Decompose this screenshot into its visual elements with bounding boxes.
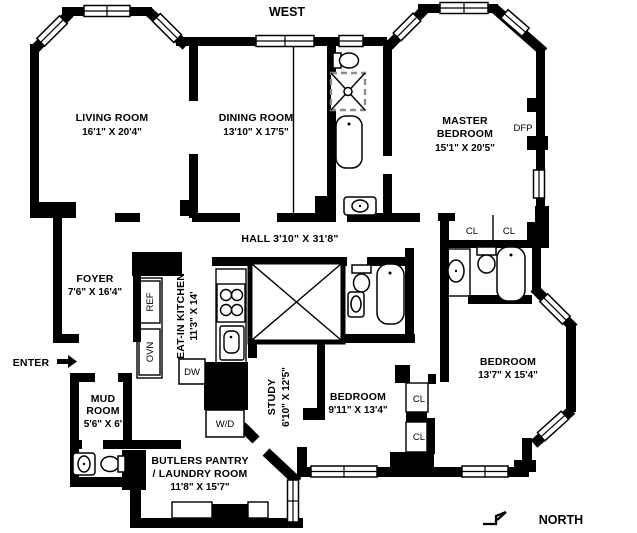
foyer-dims: 7'6" X 16'4" [68,287,123,298]
closet-label-master-1: CL [466,226,478,237]
window [84,6,130,17]
sink [344,197,376,215]
middle-bath-fixtures [348,264,404,324]
bay-window [393,13,421,41]
bay-window [540,294,570,324]
bathtub [497,247,525,301]
oven-label: OVN [145,342,156,363]
living-room-name: LIVING ROOM [76,112,149,124]
dfp-label: DFP [514,123,533,134]
window [311,466,377,477]
toilet [333,53,359,68]
washer-dryer-label: W/D [216,419,235,430]
butlers-pantry-dims: 11'8" X 15'7" [170,482,230,493]
kitchen-name: EAT-IN KITCHEN [175,273,187,359]
enter-arrow-icon [57,355,77,368]
master-bath-fixtures [331,53,376,215]
window [288,480,299,522]
north-arrow-icon [483,512,506,524]
toilet [352,265,371,292]
foyer-name: FOYER [76,273,113,285]
living-room-dims: 16'1" X 20'4" [82,127,142,138]
master-bedroom-dims: 15'1" X 20'5" [435,143,495,154]
mud-room-dims: 5'6" X 6' [84,419,122,430]
sink [348,292,364,317]
bedroom-mid-dims: 9'11" X 13'4" [328,405,388,416]
master-bedroom-name-1: MASTER [442,115,488,127]
sink [73,453,95,475]
closet-label-mid-2: CL [413,432,425,443]
bay-window [37,16,67,46]
toilet [477,247,496,273]
bedroom-right-dims: 13'7" X 15'4" [478,370,538,381]
bay-window [153,14,182,43]
dishwasher-label: DW [184,367,200,378]
sink [448,260,464,282]
study-name: STUDY [266,379,278,416]
dining-room-dims: 13'10" X 17'5" [223,127,289,138]
closet-label-master-2: CL [503,226,515,237]
dining-room-name: DINING ROOM [219,112,294,124]
window [339,36,363,47]
hall-label: HALL 3'10" X 31'8" [241,233,338,245]
ref-label: REF [145,292,156,311]
window [462,466,508,477]
stove [217,284,245,322]
mud-room-name-2: ROOM [86,405,120,417]
window [534,170,545,198]
mud-bath-fixtures [73,453,125,475]
window [440,3,488,14]
mud-room-name-1: MUD [91,393,116,405]
toilet [101,456,125,472]
enter-label: ENTER [13,357,50,369]
shower [331,73,365,110]
bedroom-right-name: BEDROOM [480,356,536,368]
kitchen-dims: 11'3" X 14' [189,292,200,341]
right-bath-fixtures [448,247,525,301]
shaft-box [250,262,343,342]
pantry-counters [172,502,268,518]
window [256,36,314,47]
floor-plan-page: WEST NORTH ENTER LIVING ROOM 16'1" X 20'… [0,0,637,533]
butlers-pantry-name-2: / LAUNDRY ROOM [153,468,248,480]
butlers-pantry-name-1: BUTLERS PANTRY [151,455,248,467]
study-dims: 6'10" X 12'5" [281,367,292,427]
closet-label-mid-1: CL [413,394,425,405]
kitchen-sink [220,326,244,360]
west-label: WEST [269,5,305,19]
bathtub [336,116,362,168]
bedroom-mid-name: BEDROOM [330,391,386,403]
bay-window [537,411,568,441]
master-bedroom-name-2: BEDROOM [437,128,493,140]
north-label: NORTH [539,513,583,527]
bathtub [377,264,404,324]
floor-plan-svg: WEST NORTH ENTER LIVING ROOM 16'1" X 20'… [0,0,637,533]
